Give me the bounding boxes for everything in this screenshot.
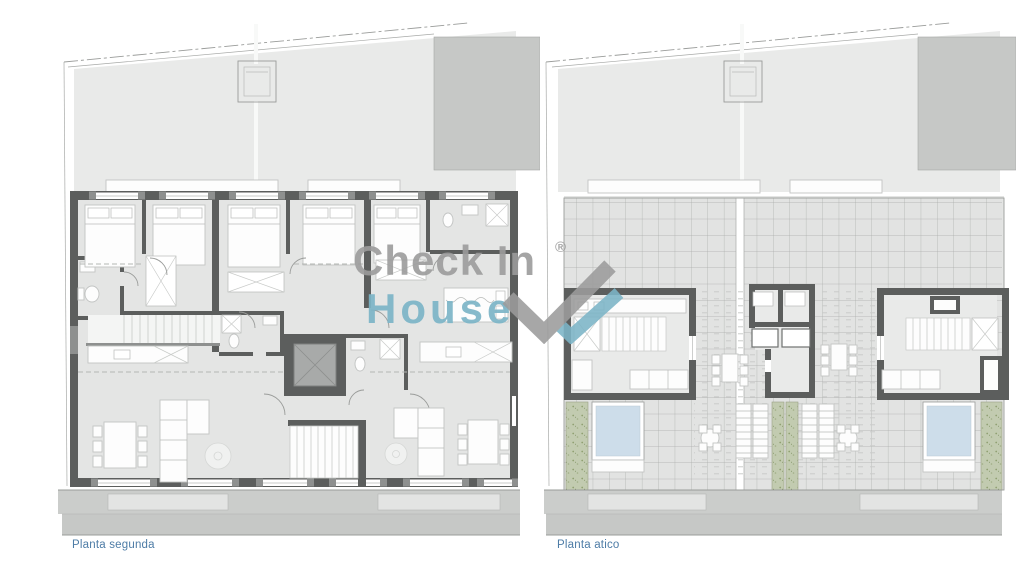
elevator [284, 334, 346, 396]
floorplan-sheet: Check In ® House Planta segunda Planta a… [0, 0, 1024, 576]
second-floor-plan-drawing [58, 8, 540, 538]
attic-unit-right [877, 288, 1009, 400]
canopies [588, 180, 882, 193]
chimney [238, 61, 276, 102]
attic-floor-plan-drawing [544, 8, 1016, 538]
attic-unit-left [564, 288, 696, 400]
sidewalk-band [62, 514, 520, 535]
panel-planta-atico [544, 8, 1016, 538]
sidewalk-band [546, 514, 1002, 535]
chimney [724, 61, 762, 102]
kitchen-left [88, 346, 188, 363]
roof-area [558, 24, 1016, 192]
label-planta-atico: Planta atico [557, 539, 620, 551]
roof-area [74, 24, 540, 192]
corridor-stairs [88, 315, 220, 343]
balcony-band [544, 490, 1002, 514]
main-stairs [290, 426, 358, 478]
kitchen-right [420, 342, 512, 362]
balcony-band [58, 490, 520, 514]
panel-planta-segunda [58, 8, 540, 538]
windows-bottom [91, 479, 518, 487]
label-planta-segunda: Planta segunda [72, 539, 155, 551]
